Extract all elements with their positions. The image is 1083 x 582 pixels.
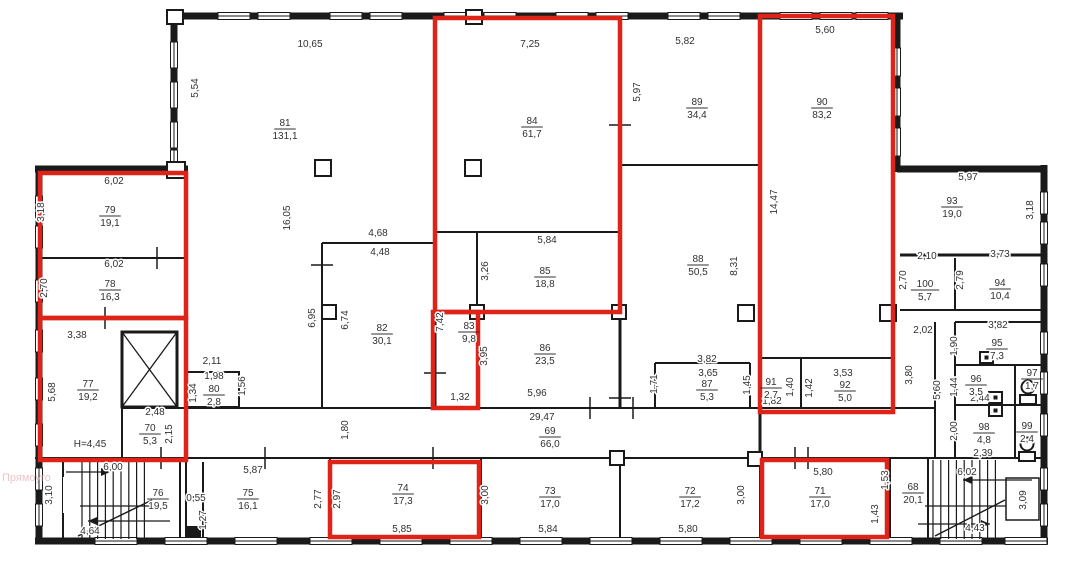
dimension-label: H=4,45 bbox=[74, 439, 107, 450]
room-area-label: 30,1 bbox=[372, 336, 392, 347]
dimension-label: 5,54 bbox=[190, 78, 201, 98]
room-number-label: 86 bbox=[539, 343, 551, 354]
room-area-label: 83,2 bbox=[812, 110, 832, 121]
dimension-label: 3,18 bbox=[36, 202, 47, 222]
room-number-label: 76 bbox=[152, 488, 164, 499]
dimension-label: 1,56 bbox=[237, 376, 248, 396]
dimension-label: 3,80 bbox=[904, 365, 915, 385]
dimension-label: 7,25 bbox=[520, 39, 540, 50]
room-area-label: 23,5 bbox=[535, 356, 555, 367]
dimension-label: 6,95 bbox=[307, 308, 318, 328]
dimension-label: 1,80 bbox=[340, 420, 351, 440]
watermark-label: Прямоуго bbox=[2, 472, 51, 484]
room-number-label: 69 bbox=[544, 426, 556, 437]
room-number-label: 99 bbox=[1021, 421, 1033, 432]
pilaster-icon bbox=[465, 160, 481, 176]
dimension-label: 2,10 bbox=[917, 251, 937, 262]
room-number-label: 68 bbox=[907, 482, 919, 493]
room-area-label: 2,8 bbox=[207, 397, 221, 408]
dimension-label: 14,47 bbox=[769, 189, 780, 214]
room-area-label: 5,3 bbox=[700, 392, 714, 403]
dimension-label: 1,43 bbox=[870, 504, 881, 524]
dimension-label: 1,44 bbox=[949, 377, 960, 397]
dimension-label: 2,15 bbox=[164, 424, 175, 444]
room-number-label: 72 bbox=[684, 486, 696, 497]
dimension-label: 6,00 bbox=[103, 462, 123, 473]
dimension-label: 5,60 bbox=[815, 25, 835, 36]
dimension-label: 6,02 bbox=[104, 176, 124, 187]
room-number-label: 96 bbox=[970, 374, 982, 385]
room-area-label: 19,5 bbox=[148, 501, 168, 512]
dimension-label: 5,68 bbox=[47, 382, 58, 402]
dimension-label: 5,80 bbox=[813, 467, 833, 478]
room-number-label: 79 bbox=[104, 205, 116, 216]
room-area-label: 16,1 bbox=[238, 501, 258, 512]
room-number-label: 83 bbox=[463, 321, 475, 332]
dimension-label: 5,97 bbox=[958, 172, 978, 183]
room-area-label: 66,0 bbox=[540, 439, 560, 450]
dimension-label: 5,82 bbox=[675, 36, 695, 47]
dimension-label: 5,85 bbox=[392, 524, 412, 535]
dimension-label: 1,34 bbox=[188, 383, 199, 403]
room-number-label: 95 bbox=[991, 338, 1003, 349]
dimension-label: 5,84 bbox=[537, 235, 557, 246]
dimension-label: 2,11 bbox=[203, 356, 222, 367]
dimension-label: 1,90 bbox=[949, 336, 960, 356]
dimension-label: 3,10 bbox=[44, 485, 55, 505]
dimension-label: 5,84 bbox=[538, 524, 558, 535]
room-number-label: 70 bbox=[144, 423, 156, 434]
dimension-label: 2,79 bbox=[955, 270, 966, 290]
sink-icon bbox=[989, 392, 1002, 403]
room-area-label: 7,3 bbox=[990, 351, 1004, 362]
dimension-label: 6,74 bbox=[340, 310, 351, 330]
room-area-label: 5,7 bbox=[918, 292, 932, 303]
room-number-label: 89 bbox=[691, 97, 703, 108]
room-area-label: 17,2 bbox=[680, 499, 700, 510]
room-number-label: 94 bbox=[994, 278, 1006, 289]
room-area-label: 16,3 bbox=[100, 292, 120, 303]
pilaster-icon bbox=[167, 162, 185, 178]
room-area-label: 2,4 bbox=[1020, 434, 1034, 445]
dimension-label: 3,09 bbox=[1018, 490, 1029, 510]
room-number-label: 82 bbox=[376, 323, 388, 334]
dimension-label: 2,70 bbox=[898, 270, 909, 290]
dimension-label: 3,65 bbox=[698, 368, 718, 379]
room-number-label: 71 bbox=[814, 486, 826, 497]
room-number-label: 74 bbox=[397, 483, 409, 494]
dimension-label: 5,97 bbox=[632, 82, 643, 102]
room-number-label: 81 bbox=[279, 118, 291, 129]
dimension-label: 4,68 bbox=[368, 228, 388, 239]
room-area-label: 17,0 bbox=[540, 499, 560, 510]
room-area-label: 5,0 bbox=[838, 393, 852, 404]
dimension-label: 10,65 bbox=[297, 39, 322, 50]
dimension-label: 5,80 bbox=[678, 524, 698, 535]
room-area-label: 19,1 bbox=[100, 218, 120, 229]
pilaster-icon bbox=[738, 305, 754, 321]
dimension-label: 1,71 bbox=[649, 374, 660, 394]
room-number-label: 97 bbox=[1026, 368, 1038, 379]
sink-icon bbox=[989, 405, 1002, 416]
dimension-label: 2,39 bbox=[973, 448, 993, 459]
floor-plan: 10,657,255,825,605,545,9716,056,023,186,… bbox=[0, 0, 1083, 582]
room-area-label: 61,7 bbox=[522, 129, 542, 140]
room-area-label: 4,8 bbox=[977, 435, 991, 446]
dimension-label: 3,53 bbox=[833, 368, 853, 379]
pilaster-icon bbox=[315, 160, 331, 176]
dimension-label: 3,00 bbox=[480, 485, 491, 505]
room-area-label: 19,0 bbox=[942, 209, 962, 220]
dimension-label: 3,00 bbox=[736, 485, 747, 505]
elevator-shaft-icon bbox=[122, 332, 177, 407]
room-area-label: 1,7 bbox=[1025, 381, 1039, 392]
dimension-label: 5,96 bbox=[527, 388, 547, 399]
room-number-label: 75 bbox=[242, 488, 254, 499]
pilaster-icon bbox=[322, 305, 336, 319]
pilaster-icon bbox=[167, 10, 183, 24]
room-area-label: 131,1 bbox=[272, 131, 297, 142]
room-area-label: 5,3 bbox=[143, 436, 157, 447]
room-number-label: 87 bbox=[701, 379, 713, 390]
dimension-label: 1,42 bbox=[804, 378, 815, 398]
dimension-label: 1,32 bbox=[450, 392, 470, 403]
room-area-label: 10,4 bbox=[990, 291, 1010, 302]
dimension-label: 3,82 bbox=[988, 320, 1008, 331]
room-area-label: 3,5 bbox=[969, 387, 983, 398]
room-area-label: 50,5 bbox=[688, 267, 708, 278]
dimension-label: 3,95 bbox=[479, 346, 490, 366]
dimension-label: 1,45 bbox=[742, 375, 753, 395]
dimension-label: 4,64 bbox=[80, 526, 100, 537]
dimension-label: 1,98 bbox=[204, 371, 224, 382]
room-area-label: 18,8 bbox=[535, 279, 555, 290]
room-area-label: 2,7 bbox=[764, 390, 778, 401]
room-number-label: 85 bbox=[539, 266, 551, 277]
room-area-label: 19,2 bbox=[78, 392, 98, 403]
dimension-label: 3,73 bbox=[990, 249, 1010, 260]
dimension-label: 16,05 bbox=[282, 205, 293, 230]
pilaster-icon bbox=[610, 451, 624, 465]
dimension-label: 4,48 bbox=[370, 247, 390, 258]
room-number-label: 80 bbox=[208, 384, 220, 395]
room-area-label: 17,0 bbox=[810, 499, 830, 510]
room-area-label: 20,1 bbox=[903, 495, 923, 506]
room-area-label: 9,8 bbox=[462, 334, 476, 345]
dimension-label: 6,02 bbox=[957, 467, 977, 478]
dimension-label: 29,47 bbox=[529, 412, 554, 423]
dimension-label: 3,18 bbox=[1025, 200, 1036, 220]
dimension-label: 5,60 bbox=[932, 380, 943, 400]
dimension-label: 6,02 bbox=[104, 259, 124, 270]
dimension-label: 3,26 bbox=[480, 261, 491, 281]
room-number-label: 78 bbox=[104, 279, 116, 290]
dimension-label: 2,02 bbox=[913, 325, 933, 336]
room-number-label: 91 bbox=[765, 377, 777, 388]
dimension-label: 1,53 bbox=[880, 470, 891, 490]
dimension-label: 2,00 bbox=[949, 421, 960, 441]
dimension-label: 4,43 bbox=[965, 523, 985, 534]
room-number-label: 92 bbox=[839, 380, 851, 391]
room-number-label: 93 bbox=[946, 196, 958, 207]
room-number-label: 100 bbox=[917, 279, 934, 290]
floor-plan-canvas: 10,657,255,825,605,545,9716,056,023,186,… bbox=[0, 0, 1083, 582]
dimension-label: 8,31 bbox=[729, 256, 740, 276]
room-area-label: 17,3 bbox=[393, 496, 413, 507]
dimension-label: 0,55 bbox=[186, 493, 206, 504]
room-number-label: 98 bbox=[978, 422, 990, 433]
room-number-label: 77 bbox=[82, 379, 94, 390]
dimension-label: 2,77 bbox=[313, 489, 324, 509]
room-area-label: 34,4 bbox=[687, 110, 707, 121]
room-number-label: 73 bbox=[544, 486, 556, 497]
dimension-label: 2,70 bbox=[39, 278, 50, 298]
dimension-label: 7,42 bbox=[435, 312, 446, 332]
dimension-label: 3,82 bbox=[697, 354, 717, 365]
dimension-label: 2,48 bbox=[145, 407, 165, 418]
dimension-label: 5,87 bbox=[243, 465, 263, 476]
room-number-label: 90 bbox=[816, 97, 828, 108]
dimension-label: 2,97 bbox=[332, 489, 343, 509]
room-number-label: 88 bbox=[692, 254, 704, 265]
dimension-label: 1,40 bbox=[785, 377, 796, 397]
room-number-label: 84 bbox=[526, 116, 538, 127]
dimension-label: 3,38 bbox=[67, 330, 87, 341]
dimension-label: 1,27 bbox=[198, 510, 209, 530]
